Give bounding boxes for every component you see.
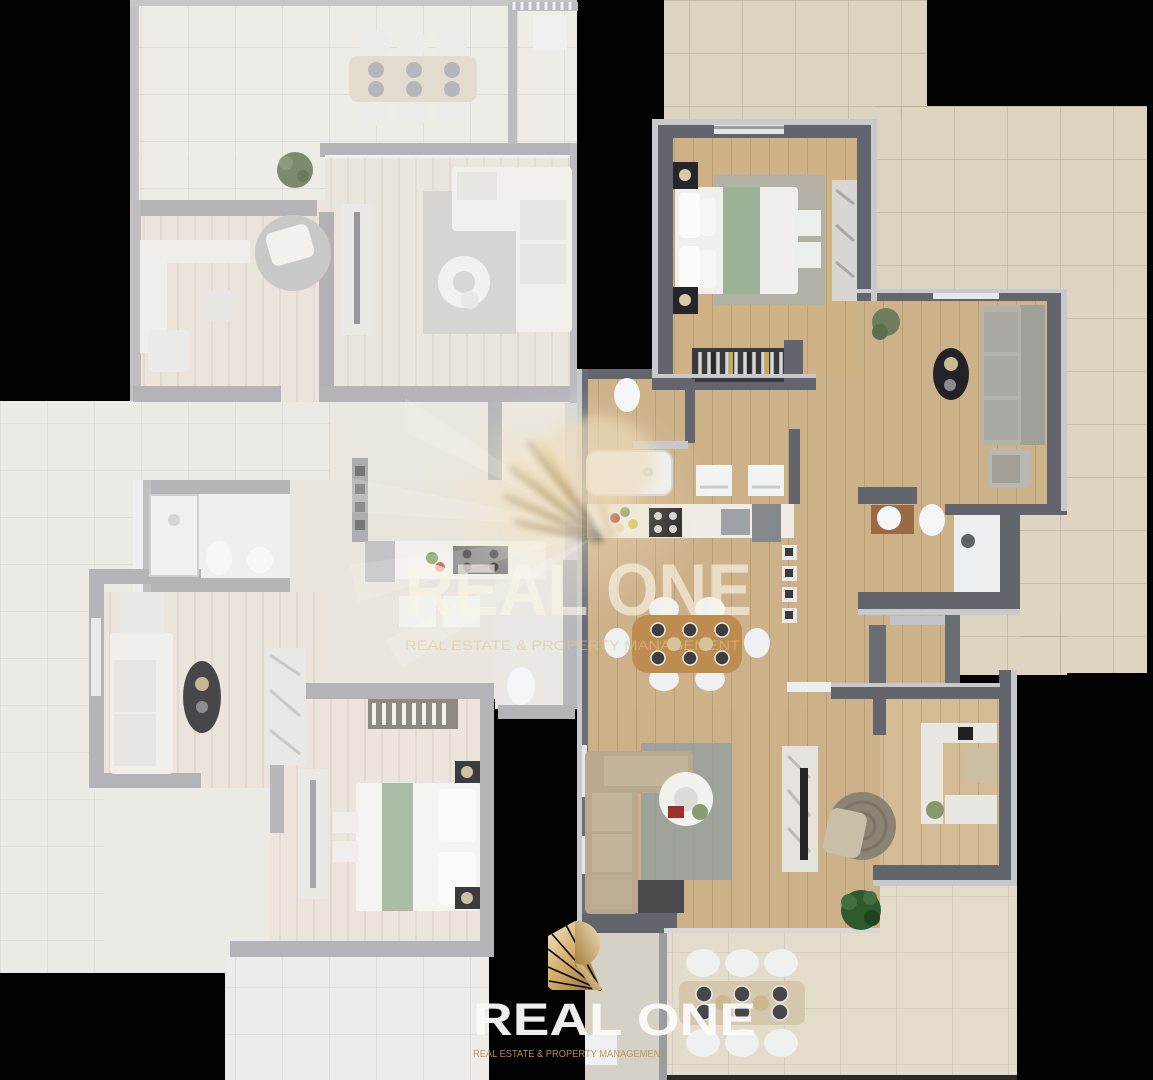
svg-text:REAL ONE: REAL ONE (473, 994, 756, 1045)
svg-text:REAL ESTATE & PROPERTY MANAGEM: REAL ESTATE & PROPERTY MANAGEMENT (405, 637, 741, 653)
svg-text:REAL ONE: REAL ONE (405, 550, 752, 631)
svg-text:REAL ESTATE & PROPERTY MANAGEM: REAL ESTATE & PROPERTY MANAGEMENT (473, 1049, 666, 1060)
